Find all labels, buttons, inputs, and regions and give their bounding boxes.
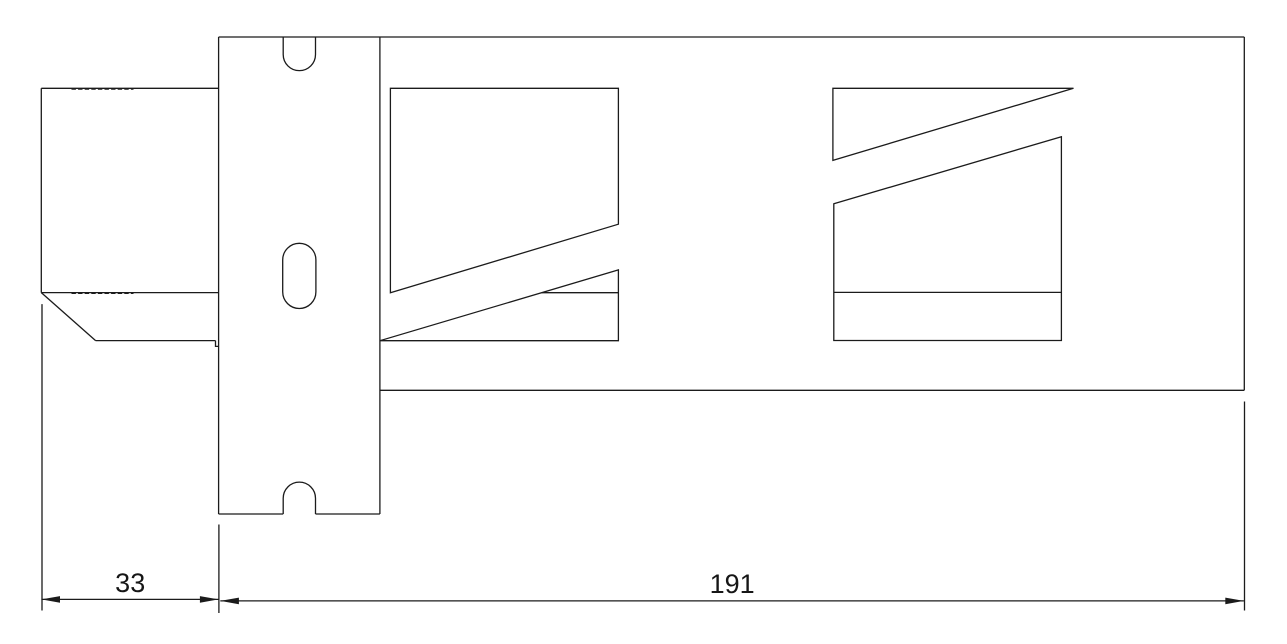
svg-text:33: 33 — [115, 568, 145, 598]
svg-text:191: 191 — [710, 569, 755, 599]
